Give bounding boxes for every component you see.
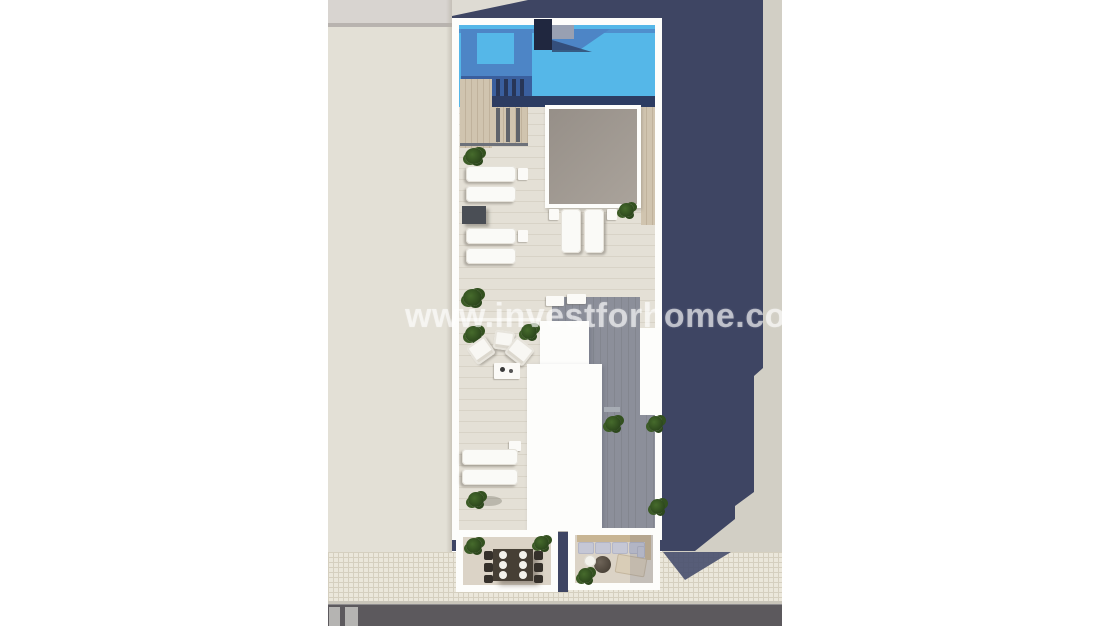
side-table: [518, 230, 528, 242]
deck-table: [462, 206, 486, 224]
potted-plant: [605, 416, 621, 431]
balcony-gap-shadow: [558, 532, 568, 592]
sun-lounger: [466, 248, 516, 264]
side-table: [518, 168, 528, 180]
sun-lounger: [584, 209, 604, 253]
dining-table: [493, 549, 533, 581]
road-marking: [329, 607, 340, 626]
watermark-text: www.investforhome.com: [405, 297, 817, 336]
side-table: [607, 209, 617, 220]
sun-lounger: [466, 186, 516, 202]
pergola-post: [506, 108, 510, 142]
sofa-cushion: [595, 542, 611, 554]
plate: [519, 561, 527, 569]
potted-plant: [466, 538, 482, 553]
tea-set: [509, 369, 513, 373]
balcony-shade: [630, 535, 653, 583]
sun-lounger: [561, 209, 581, 253]
tea-set: [500, 367, 505, 372]
dining-chair: [484, 575, 493, 583]
roof-chimney: [534, 19, 552, 50]
roof-band-right: [640, 328, 655, 415]
architectural-render-scene: www.investforhome.com: [0, 0, 1110, 626]
potted-plant: [468, 492, 484, 507]
potted-plant: [648, 416, 663, 431]
plate: [519, 571, 527, 579]
side-table: [549, 209, 559, 220]
roof-volume-lower: [527, 364, 602, 531]
pergola-post: [496, 108, 500, 142]
coffee-table: [494, 363, 520, 379]
pouf: [584, 555, 596, 567]
sofa-cushion: [612, 542, 628, 554]
dining-chair: [484, 563, 493, 572]
sofa-cushion: [578, 542, 594, 554]
potted-plant: [619, 203, 634, 217]
pool-left-inner-water: [477, 33, 514, 64]
neighbor-roof-upper-band: [328, 0, 452, 23]
plate: [519, 551, 527, 559]
sun-lounger: [466, 166, 516, 182]
road: [328, 604, 782, 626]
plate: [499, 551, 507, 559]
plate: [499, 561, 507, 569]
dining-chair: [534, 575, 543, 583]
round-table: [594, 556, 611, 573]
wood-deck-corner: [460, 79, 492, 148]
pergola-post: [516, 108, 520, 142]
sun-lounger: [462, 469, 518, 485]
skylight: [549, 109, 637, 204]
roof-chimney-cap: [552, 25, 574, 39]
sun-lounger: [466, 228, 516, 244]
potted-plant: [534, 536, 549, 550]
sun-lounger: [462, 449, 518, 465]
deck-bench: [604, 407, 620, 412]
plate: [499, 571, 507, 579]
road-marking: [345, 607, 358, 626]
neighbor-roof-divider: [328, 23, 452, 27]
potted-plant: [578, 568, 593, 583]
potted-plant: [465, 148, 483, 164]
dining-chair: [534, 563, 543, 572]
dining-chair: [484, 551, 493, 560]
wood-walkway-right: [641, 107, 655, 225]
deck-railing: [460, 143, 528, 146]
dining-chair: [534, 551, 543, 560]
neighbor-roof-strip: [328, 0, 452, 553]
potted-plant: [650, 499, 665, 514]
